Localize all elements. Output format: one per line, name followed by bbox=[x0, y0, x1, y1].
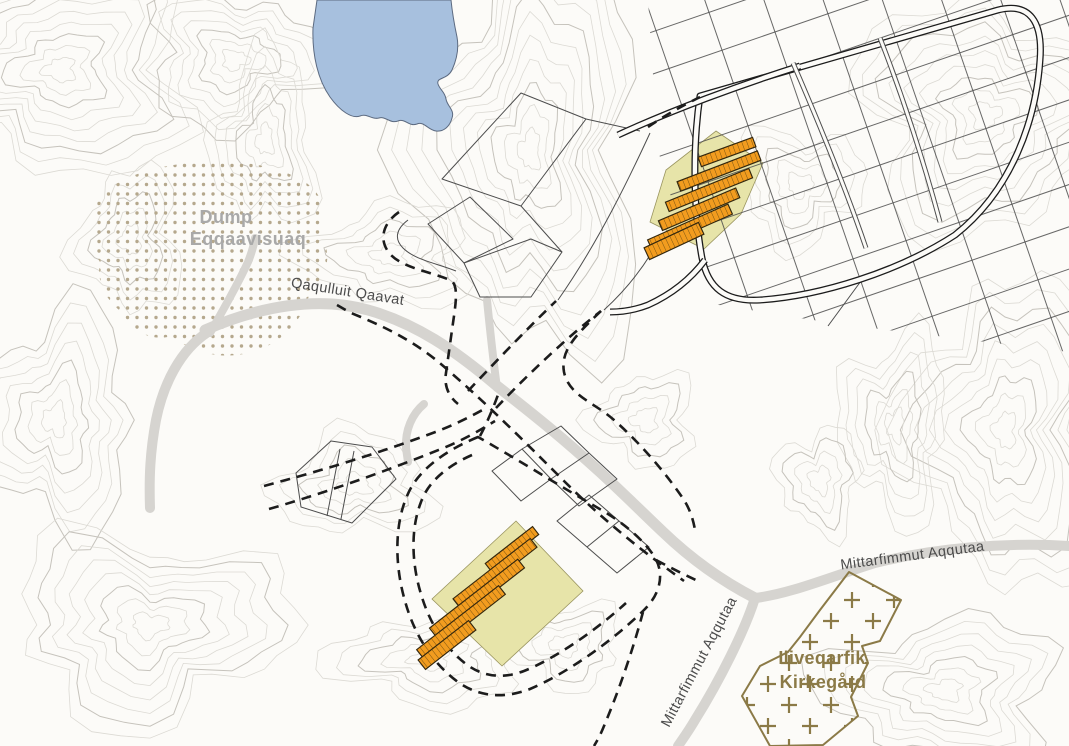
dump-label-line1: Dump bbox=[200, 207, 253, 227]
cemetery-label-line2: Kirkegård bbox=[780, 672, 867, 692]
cemetery-label-line1: Iliveqarfik bbox=[778, 648, 866, 668]
town-plan-map[interactable]: Dump Eqqaavisuaq Qaqulluit Qaavat Mittar… bbox=[0, 0, 1069, 746]
dump-label-line2: Eqqaavisuaq bbox=[190, 229, 307, 249]
map-canvas[interactable]: Dump Eqqaavisuaq Qaqulluit Qaavat Mittar… bbox=[0, 0, 1069, 746]
